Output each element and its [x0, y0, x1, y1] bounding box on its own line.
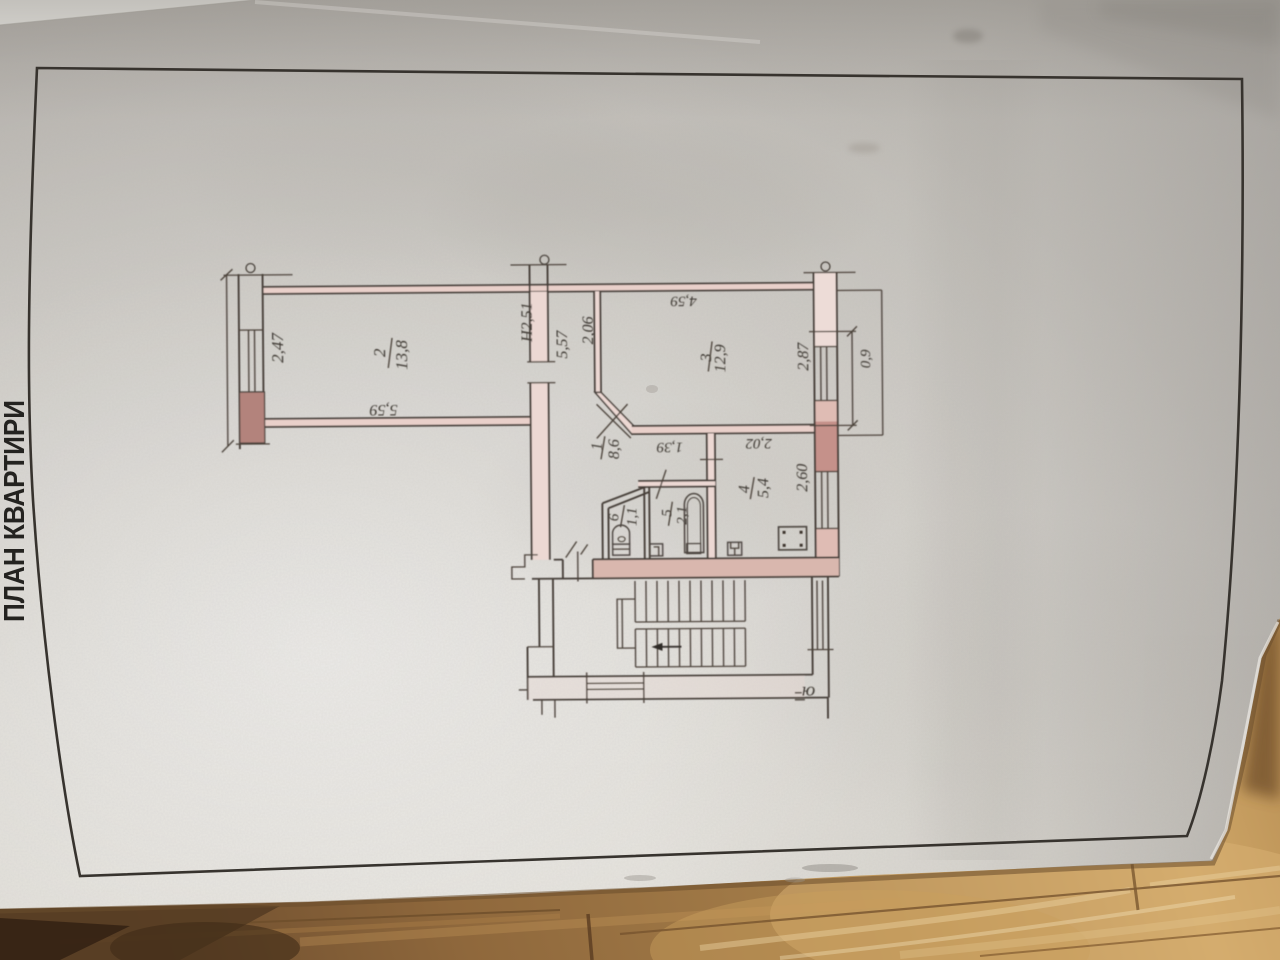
- svg-text:2,87: 2,87: [795, 342, 812, 371]
- svg-text:5,4: 5,4: [755, 478, 772, 498]
- svg-text:8,6: 8,6: [606, 439, 623, 459]
- svg-text:5,59: 5,59: [370, 401, 398, 418]
- svg-text:0,9: 0,9: [858, 349, 874, 368]
- svg-text:4,59: 4,59: [670, 293, 697, 309]
- svg-text:2: 2: [370, 348, 389, 357]
- svg-text:1,39: 1,39: [656, 439, 683, 455]
- svg-text:2,47: 2,47: [268, 332, 287, 363]
- svg-text:2,60: 2,60: [794, 464, 811, 492]
- svg-text:6: 6: [606, 513, 622, 521]
- svg-text:5: 5: [659, 509, 675, 517]
- svg-text:2,02: 2,02: [745, 435, 772, 451]
- svg-text:5,57: 5,57: [554, 330, 571, 359]
- svg-text:13,8: 13,8: [392, 340, 411, 370]
- svg-text:ПЛАН КВАРТИРИ: ПЛАН КВАРТИРИ: [0, 400, 31, 622]
- svg-text:12,9: 12,9: [712, 344, 729, 372]
- svg-text:2,1: 2,1: [674, 506, 690, 525]
- svg-text:1,1: 1,1: [624, 507, 640, 526]
- svg-text:H2,51: H2,51: [519, 302, 536, 343]
- svg-text:1: 1: [589, 442, 606, 450]
- svg-text:ю: ю: [802, 680, 816, 701]
- svg-text:4: 4: [736, 485, 753, 493]
